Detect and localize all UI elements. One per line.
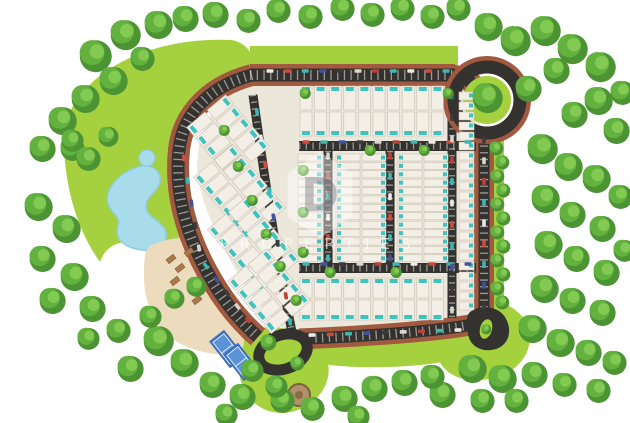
watermark-logo-letter: D <box>301 168 339 222</box>
watermark-text: PROPERTIES <box>0 235 630 253</box>
site-plan-rendering: D PROPERTIES <box>0 0 630 423</box>
